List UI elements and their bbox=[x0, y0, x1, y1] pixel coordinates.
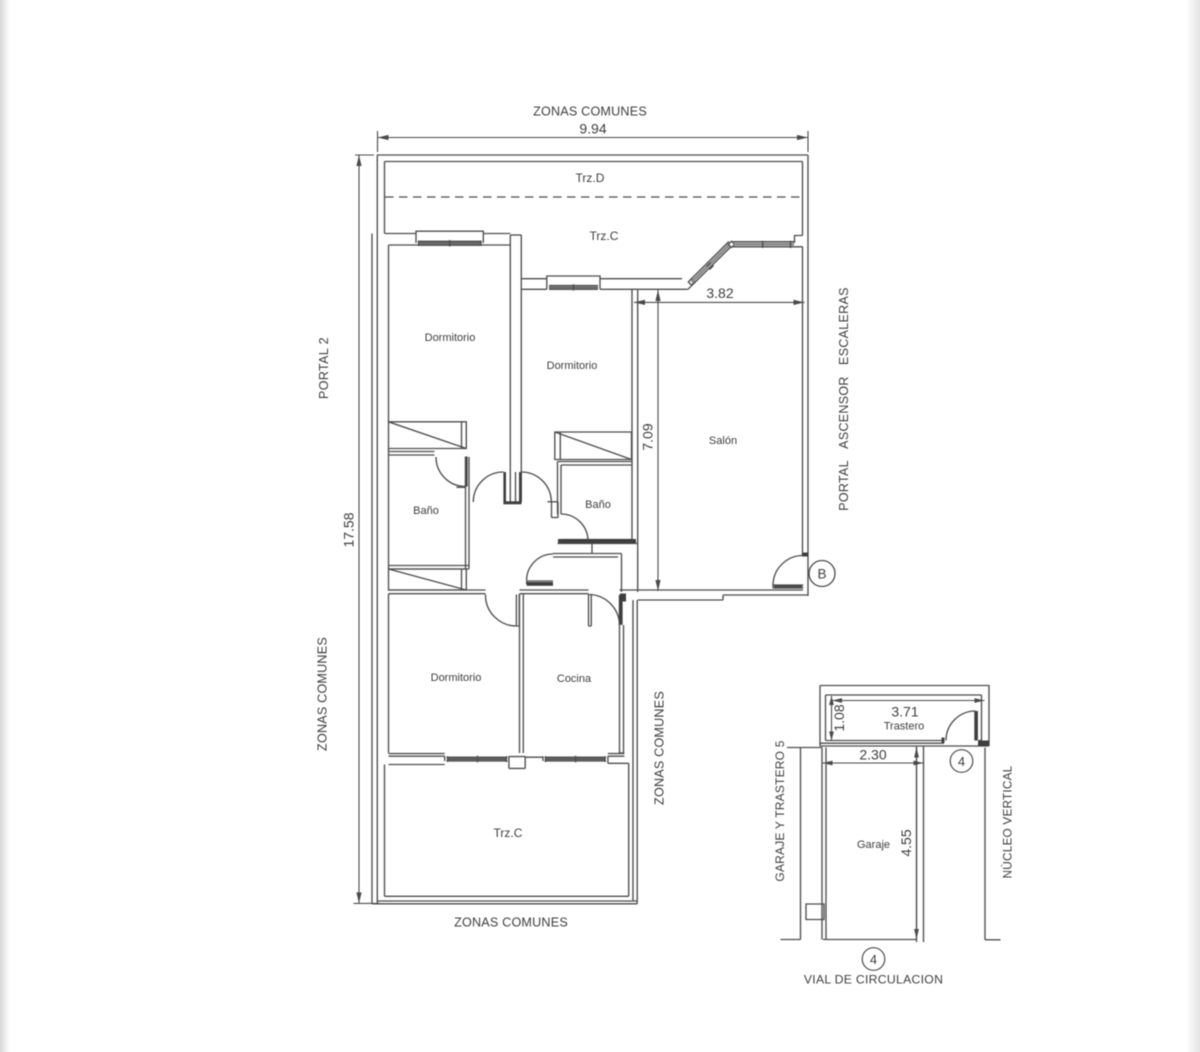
svg-text:4: 4 bbox=[870, 952, 877, 967]
svg-text:1.08: 1.08 bbox=[831, 704, 847, 731]
svg-text:NÙCLEO VERTICAL: NÙCLEO VERTICAL bbox=[1001, 765, 1015, 878]
svg-text:Garaje: Garaje bbox=[857, 839, 890, 851]
svg-text:Dormitorio: Dormitorio bbox=[431, 672, 482, 684]
svg-text:4.55: 4.55 bbox=[898, 829, 914, 856]
svg-text:Trz.C: Trz.C bbox=[590, 229, 619, 243]
svg-text:17.58: 17.58 bbox=[341, 512, 357, 547]
svg-text:PORTAL ASCENSOR ESCALERAS: PORTAL ASCENSOR ESCALERAS bbox=[837, 287, 851, 511]
svg-text:Salón: Salón bbox=[709, 435, 737, 447]
svg-text:4: 4 bbox=[958, 754, 965, 769]
svg-text:Cocina: Cocina bbox=[557, 673, 592, 685]
svg-text:Dormitorio: Dormitorio bbox=[425, 332, 476, 344]
svg-text:Baño: Baño bbox=[585, 499, 611, 511]
svg-text:ZONAS COMUNES: ZONAS COMUNES bbox=[454, 916, 568, 930]
svg-text:9.94: 9.94 bbox=[579, 121, 606, 137]
svg-text:B: B bbox=[817, 567, 826, 582]
svg-text:PORTAL 2: PORTAL 2 bbox=[317, 337, 331, 399]
svg-text:3.71: 3.71 bbox=[891, 704, 918, 720]
svg-text:GARAJE Y TRASTERO 5: GARAJE Y TRASTERO 5 bbox=[773, 740, 787, 881]
svg-text:Dormitorio: Dormitorio bbox=[547, 360, 598, 372]
svg-text:Trastero: Trastero bbox=[884, 721, 925, 733]
svg-text:3.82: 3.82 bbox=[706, 285, 733, 301]
svg-text:Trz.D: Trz.D bbox=[576, 171, 605, 185]
svg-text:Trz.C: Trz.C bbox=[494, 826, 523, 840]
svg-text:ZONAS COMUNES: ZONAS COMUNES bbox=[316, 637, 330, 751]
svg-text:ZONAS COMUNES: ZONAS COMUNES bbox=[533, 105, 647, 119]
svg-text:VIAL DE CIRCULACION: VIAL DE CIRCULACION bbox=[804, 973, 943, 987]
svg-text:ZONAS COMUNES: ZONAS COMUNES bbox=[653, 691, 667, 805]
svg-text:7.09: 7.09 bbox=[639, 423, 655, 450]
svg-text:Baño: Baño bbox=[413, 505, 439, 517]
svg-text:2.30: 2.30 bbox=[859, 747, 886, 763]
